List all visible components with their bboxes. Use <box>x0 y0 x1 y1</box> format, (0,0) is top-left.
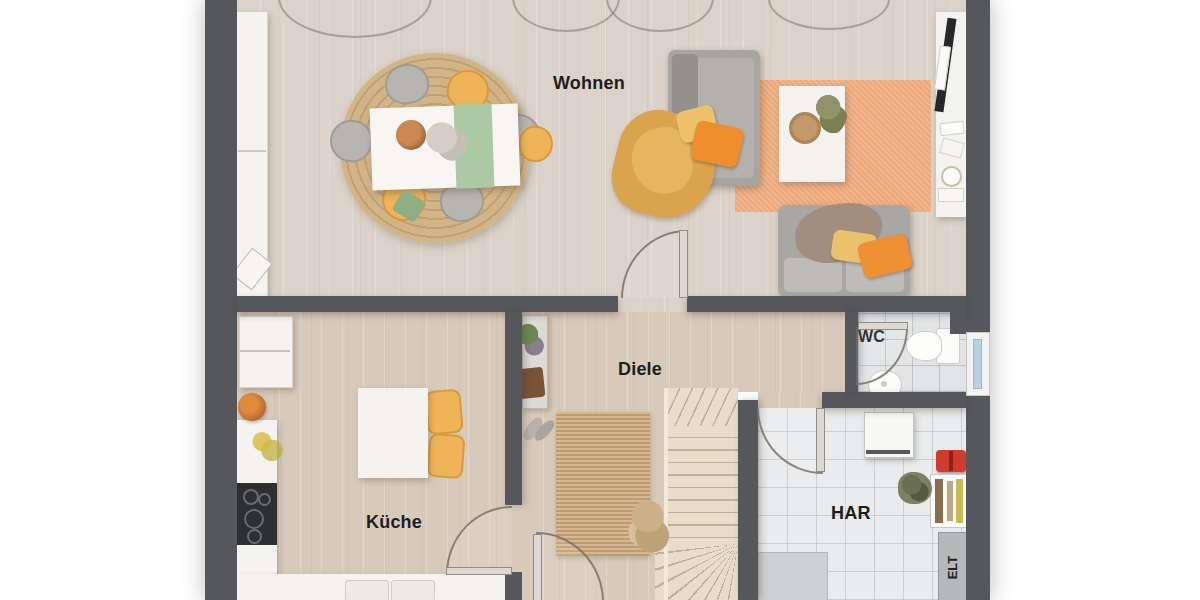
wall-wohnen-south-left <box>237 296 618 312</box>
room-label-diele: Diele <box>618 359 662 380</box>
wall-kueche-diele <box>505 312 522 505</box>
diele-corridor-floor <box>738 312 845 392</box>
boiler-base <box>866 450 910 454</box>
kitchen-chair <box>424 389 464 436</box>
kitchen-table <box>358 388 428 478</box>
fridge-divider <box>240 350 290 352</box>
toilet-bowl <box>906 331 942 361</box>
door-leaf <box>679 230 688 298</box>
wall-kueche-diele-stub <box>505 572 522 600</box>
doorway-har <box>758 392 822 408</box>
washbasin-drain <box>881 381 887 387</box>
work-cloth <box>898 472 932 504</box>
sideboard-divider <box>238 150 266 152</box>
cooktop <box>237 483 277 545</box>
wall-window-stub <box>950 312 966 334</box>
room-label-wohnen: Wohnen <box>553 73 625 94</box>
burner <box>258 493 271 506</box>
wall-exterior-left <box>205 0 237 600</box>
floor-plan-canvas: Wohnen Küche <box>0 0 1200 600</box>
door-leaf <box>533 534 542 600</box>
toolbox-handle <box>949 451 953 471</box>
sink <box>345 580 389 600</box>
decor-cup <box>941 166 962 187</box>
fruit-bowl <box>238 393 266 421</box>
door-leaf <box>446 567 512 575</box>
wall-exterior-right <box>966 0 990 600</box>
staircase <box>668 426 738 544</box>
kitchen-chair <box>427 433 466 479</box>
wall-diele-har <box>738 400 758 600</box>
burner <box>244 509 264 529</box>
burner <box>243 489 259 505</box>
har-appliance <box>758 552 828 600</box>
elt-cabinet: ELT <box>938 532 968 600</box>
door-leaf <box>858 322 908 330</box>
burner <box>247 529 262 544</box>
room-label-kueche: Küche <box>366 512 422 533</box>
staircase-top-winder <box>668 388 738 426</box>
sofa-backrest <box>672 54 698 116</box>
window-glass <box>973 339 982 389</box>
tool <box>935 479 943 523</box>
fridge <box>239 316 293 388</box>
tool-shelf <box>930 474 968 528</box>
sink <box>391 580 435 600</box>
decor-books <box>939 121 964 136</box>
room-label-elt: ELT <box>946 555 961 579</box>
doorway-wohnen-diele <box>618 296 687 312</box>
decor-books <box>938 188 964 202</box>
wall-wc-har <box>822 392 966 408</box>
room-label-har: HAR <box>831 503 871 524</box>
herb-plant <box>246 424 286 468</box>
tool <box>956 479 963 523</box>
centerpiece-bowl <box>396 120 426 150</box>
wall-wohnen-south-right <box>687 296 966 312</box>
staircase-stringer <box>664 388 668 600</box>
tool <box>947 481 953 521</box>
sofa-2-cushion <box>784 258 842 292</box>
door-leaf <box>816 408 825 472</box>
